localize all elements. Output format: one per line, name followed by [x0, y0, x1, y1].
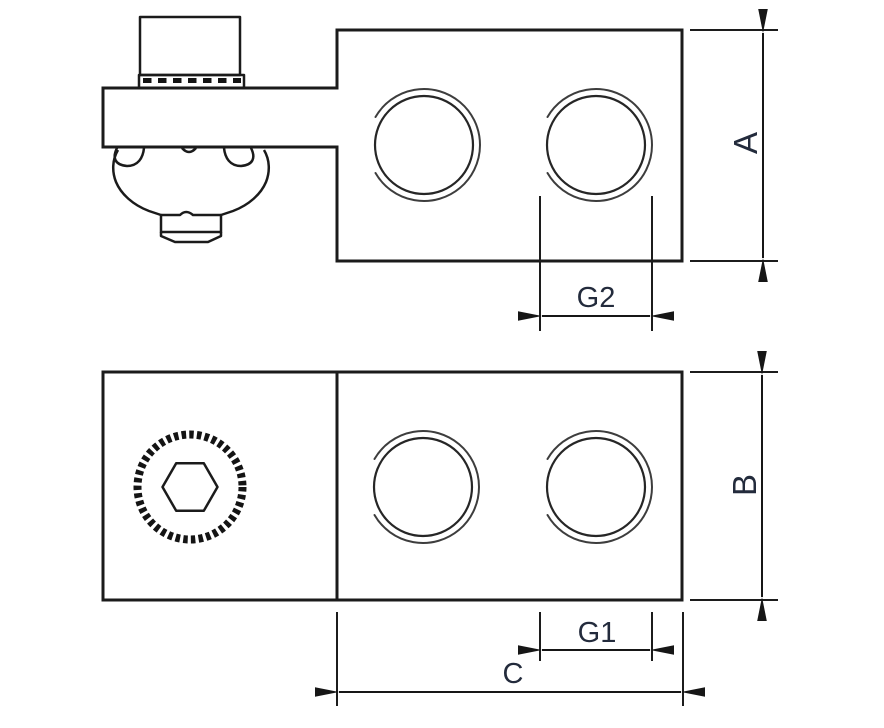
top-view: A G2 — [103, 17, 778, 331]
dim-label-g2: G2 — [577, 282, 616, 314]
ports-top — [375, 89, 652, 201]
screw-head — [140, 17, 240, 75]
right-relief-notch — [224, 148, 253, 166]
ports-bottom — [374, 431, 652, 543]
dimension-c: C — [337, 612, 683, 706]
dim-label-c: C — [503, 658, 524, 690]
port-thread-bottom-right — [548, 431, 652, 543]
dimension-a: A — [690, 30, 778, 261]
port-thread-top-left — [376, 89, 480, 201]
technical-drawing: A G2 — [0, 0, 884, 728]
hex-socket — [163, 463, 218, 511]
center-nub — [182, 148, 196, 152]
bottom-view: B G1 C — [103, 372, 778, 706]
port-bore-top-left — [375, 96, 473, 194]
port-block-top-outline — [103, 30, 682, 261]
port-thread-top-right — [548, 89, 652, 201]
end-fitting — [113, 148, 269, 242]
port-bore-bottom-left — [374, 438, 472, 536]
port-block-bottom-outline — [103, 372, 682, 600]
port-thread-bottom-left — [375, 431, 479, 543]
port-bore-top-right — [547, 96, 645, 194]
fitting-step-edge — [161, 212, 221, 215]
dim-label-a: A — [727, 132, 764, 154]
dimension-g2: G2 — [540, 196, 652, 331]
left-relief-notch — [115, 148, 144, 166]
dimension-g1: G1 — [540, 612, 652, 661]
knurled-head-ring — [138, 435, 243, 540]
port-bore-bottom-right — [547, 438, 645, 536]
dim-label-g1: G1 — [578, 617, 617, 649]
socket-head-screw — [138, 435, 243, 540]
drawing-canvas: A G2 — [0, 0, 884, 728]
dimension-b: B — [690, 372, 778, 600]
fitting-chamfer-tip — [161, 232, 221, 242]
dim-label-b: B — [726, 474, 763, 496]
